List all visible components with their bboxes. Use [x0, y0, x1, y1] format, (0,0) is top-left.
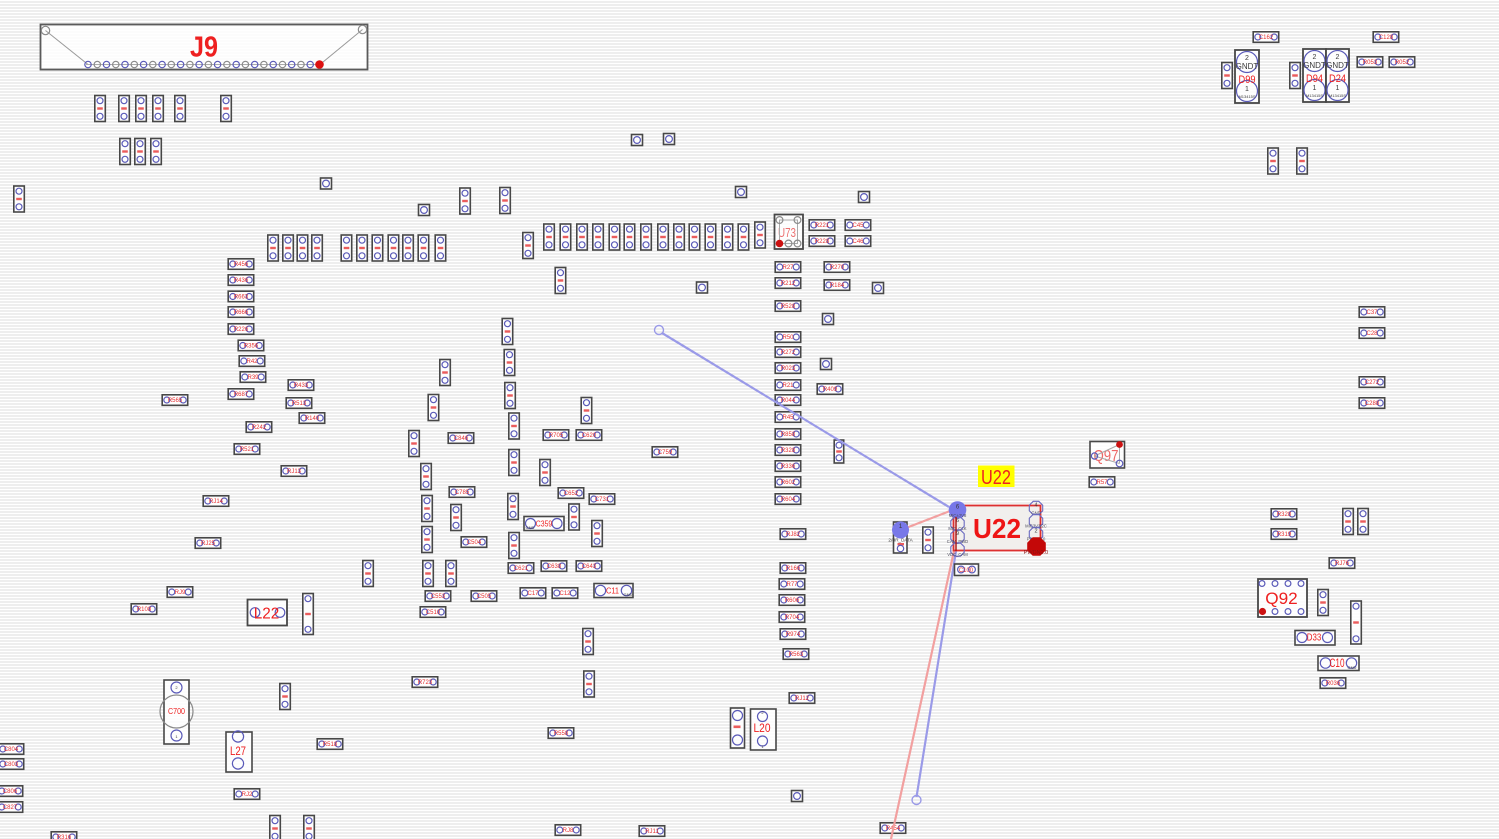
svg-text:R563: R563	[789, 652, 804, 658]
svg-text:R456: R456	[234, 262, 249, 268]
svg-text:GND: GND	[624, 592, 633, 597]
svg-text:C700: C700	[168, 706, 185, 716]
svg-text:L22: L22	[254, 606, 280, 623]
svg-text:C731: C731	[595, 497, 610, 503]
svg-text:R723: R723	[418, 680, 433, 686]
svg-text:R221: R221	[815, 223, 830, 229]
svg-text:R687: R687	[234, 392, 249, 398]
svg-text:M13415S: M13415S	[1238, 94, 1255, 99]
svg-text:R77: R77	[786, 582, 798, 588]
svg-text:PWDN2.0: PWDN2.0	[1024, 550, 1048, 556]
svg-text:R270: R270	[830, 265, 845, 271]
svg-text:RJ13: RJ13	[287, 469, 302, 475]
svg-text:D94: D94	[1306, 73, 1323, 85]
svg-text:R45: R45	[782, 415, 794, 421]
svg-text:RJ76: RJ76	[1335, 561, 1350, 567]
svg-text:R328: R328	[1277, 512, 1292, 518]
svg-text:R272: R272	[781, 350, 796, 356]
svg-text:R023: R023	[781, 366, 796, 372]
svg-text:R184: R184	[830, 283, 845, 289]
svg-text:GND: GND	[1348, 665, 1357, 670]
svg-text:R108: R108	[137, 607, 152, 613]
svg-text:C12: C12	[559, 591, 571, 597]
svg-text:C272: C272	[1365, 380, 1380, 386]
svg-text:R705: R705	[549, 433, 564, 439]
svg-text:GNDT: GNDT	[1236, 62, 1259, 71]
svg-text:RJ14: RJ14	[209, 499, 224, 505]
svg-text:R212: R212	[781, 281, 796, 287]
svg-text:R565: R565	[168, 398, 183, 404]
svg-text:M13415S: M13415S	[1329, 93, 1346, 98]
svg-text:R336: R336	[781, 464, 796, 470]
svg-text:C510: C510	[426, 610, 441, 616]
svg-text:D99: D99	[1239, 74, 1256, 86]
svg-text:C759: C759	[658, 450, 673, 456]
svg-text:R053: R053	[1363, 60, 1378, 66]
svg-text:C359: C359	[536, 519, 553, 529]
svg-text:2AIR_DATA: 2AIR_DATA	[888, 538, 913, 543]
svg-text:R39: R39	[247, 375, 259, 381]
svg-text:C28: C28	[1366, 331, 1378, 337]
svg-text:L20: L20	[754, 721, 771, 735]
svg-text:C785: C785	[455, 490, 470, 496]
svg-text:C803: C803	[4, 762, 19, 768]
svg-text:R528: R528	[781, 304, 796, 310]
svg-text:C37: C37	[1366, 310, 1378, 316]
svg-text:R226: R226	[234, 327, 249, 333]
svg-text:GND: GND	[526, 525, 535, 530]
svg-text:RJ2: RJ2	[242, 792, 253, 798]
svg-text:C806: C806	[3, 789, 18, 795]
svg-text:C11: C11	[606, 586, 619, 596]
svg-text:R052: R052	[1395, 60, 1410, 66]
svg-text:R316: R316	[57, 835, 72, 839]
svg-text:C643: C643	[582, 564, 597, 570]
svg-text:J9: J9	[190, 32, 218, 64]
svg-text:RJ11: RJ11	[645, 829, 659, 835]
svg-text:R036: R036	[1326, 681, 1341, 687]
svg-text:C827: C827	[3, 805, 18, 811]
svg-text:M13415S: M13415S	[1306, 93, 1323, 98]
svg-text:4: 4	[1034, 503, 1037, 509]
svg-text:2: 2	[1034, 529, 1037, 535]
svg-text:R858: R858	[781, 432, 796, 438]
svg-text:R604: R604	[781, 497, 796, 503]
svg-text:R57: R57	[1096, 480, 1108, 486]
svg-text:C505: C505	[477, 594, 492, 600]
svg-text:R42: R42	[246, 359, 258, 365]
svg-text:R242: R242	[252, 425, 267, 431]
svg-text:C504: C504	[467, 540, 482, 546]
svg-text:R27: R27	[782, 265, 794, 271]
svg-text:VDC_CAM: VDC_CAM	[947, 552, 968, 557]
svg-text:R436: R436	[234, 278, 249, 284]
svg-text:1: 1	[1336, 85, 1340, 92]
svg-text:RJ82: RJ82	[786, 532, 801, 538]
svg-text:R166: R166	[786, 566, 801, 572]
svg-text:R513: R513	[292, 401, 307, 407]
svg-text:R521: R521	[240, 447, 255, 453]
svg-text:C17: C17	[527, 591, 539, 597]
svg-text:R356: R356	[244, 344, 259, 350]
svg-text:GNDT: GNDT	[1326, 61, 1349, 70]
svg-text:C846: C846	[454, 436, 469, 442]
svg-text:GNDT: GNDT	[1303, 61, 1326, 70]
svg-text:U22: U22	[981, 467, 1011, 489]
svg-text:R666: R666	[234, 310, 249, 316]
svg-text:RJ9: RJ9	[175, 590, 186, 596]
svg-text:R228: R228	[815, 239, 830, 245]
svg-text:R974: R974	[786, 632, 801, 638]
svg-text:R518: R518	[323, 742, 338, 748]
svg-text:R319: R319	[1277, 532, 1292, 538]
svg-text:2: 2	[1313, 54, 1317, 61]
svg-text:U73: U73	[778, 226, 796, 240]
svg-text:RJ25: RJ25	[201, 541, 216, 547]
svg-text:C46: C46	[852, 239, 864, 245]
svg-text:C804: C804	[4, 747, 19, 753]
svg-text:1: 1	[899, 523, 903, 530]
svg-text:C128: C128	[1379, 35, 1394, 41]
svg-text:1: 1	[1313, 85, 1317, 92]
svg-text:R409: R409	[823, 387, 838, 393]
svg-text:RJ12: RJ12	[795, 696, 810, 702]
svg-text:R602: R602	[781, 480, 796, 486]
svg-text:RJ8: RJ8	[563, 828, 574, 834]
svg-text:R663: R663	[234, 295, 249, 301]
svg-text:C553: C553	[431, 594, 446, 600]
svg-text:Q92: Q92	[1265, 590, 1298, 608]
svg-text:R328: R328	[781, 448, 796, 454]
svg-text:D24: D24	[1329, 73, 1346, 85]
svg-text:R21: R21	[782, 383, 794, 389]
svg-text:U22: U22	[973, 513, 1021, 544]
svg-text:C638: C638	[547, 564, 562, 570]
svg-text:R140: R140	[305, 416, 320, 422]
svg-text:L27: L27	[230, 746, 246, 758]
svg-text:C621: C621	[514, 566, 529, 572]
svg-text:R704: R704	[785, 615, 800, 621]
svg-text:C100: C100	[959, 568, 974, 574]
svg-text:C652: C652	[564, 491, 579, 497]
svg-text:2: 2	[1245, 55, 1249, 62]
svg-text:C45: C45	[852, 223, 864, 229]
svg-text:C620: C620	[582, 433, 597, 439]
svg-text:C10: C10	[1330, 658, 1345, 670]
svg-text:D33: D33	[1307, 632, 1322, 644]
svg-text:R558: R558	[554, 731, 569, 737]
svg-text:C288: C288	[1365, 401, 1380, 407]
svg-text:R044: R044	[781, 398, 796, 404]
svg-text:R50: R50	[782, 335, 794, 341]
svg-text:1: 1	[1245, 86, 1249, 93]
svg-text:2: 2	[1336, 54, 1340, 61]
svg-text:C162: C162	[1259, 35, 1274, 41]
svg-text:R433: R433	[294, 383, 309, 389]
svg-text:R606: R606	[785, 598, 800, 604]
